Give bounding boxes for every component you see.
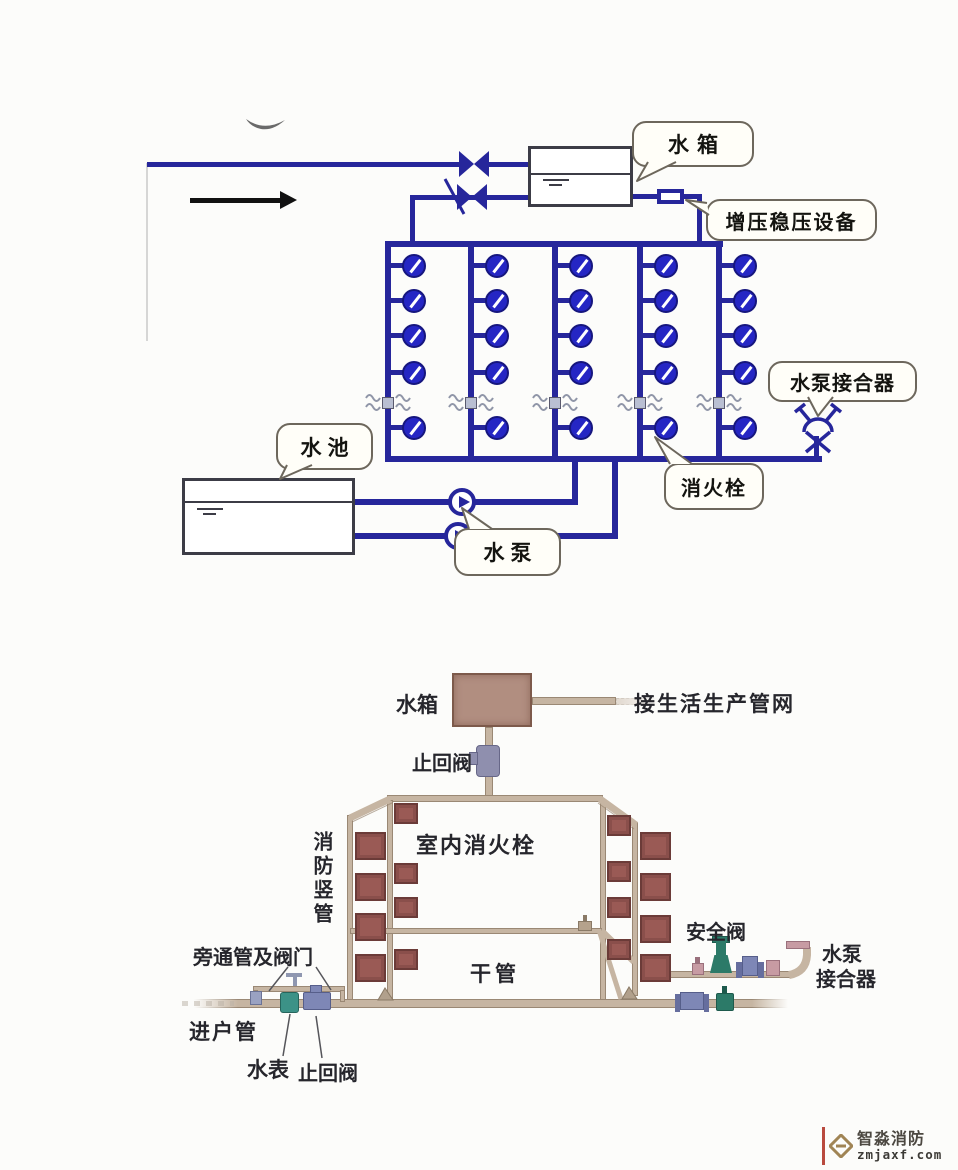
water-pool-box bbox=[182, 478, 355, 555]
outlet-slash bbox=[492, 329, 504, 343]
service-network-label: 接生活生产管网 bbox=[634, 688, 795, 718]
flex-wave-icon bbox=[563, 404, 577, 410]
pipe-segment bbox=[814, 436, 819, 458]
brand-name: 智淼消防 bbox=[857, 1131, 942, 1148]
outlet-slash bbox=[576, 421, 588, 435]
pipe-fade bbox=[752, 997, 792, 1010]
pump-label: 水泵 bbox=[484, 537, 538, 567]
hydrant-outlet-icon bbox=[569, 416, 593, 440]
flex-wave-icon bbox=[366, 404, 380, 410]
flex-wave-icon bbox=[533, 395, 547, 401]
outlet-slash bbox=[492, 259, 504, 273]
gate-valve-flange-icon bbox=[736, 962, 742, 978]
indoor-hydrant-label: 室内消火栓 bbox=[416, 828, 536, 860]
pipe-segment bbox=[600, 800, 606, 1000]
hydrant-outlet-icon bbox=[733, 254, 757, 278]
hydrant-box bbox=[355, 954, 386, 982]
flex-wave-icon bbox=[479, 404, 493, 410]
pipe-segment bbox=[387, 800, 393, 1000]
hydrant-box bbox=[355, 873, 386, 901]
water-tank-label: 水箱 bbox=[668, 129, 726, 159]
water-level-mark bbox=[543, 179, 569, 181]
outlet-slash bbox=[661, 329, 673, 343]
check-valve-top-label: 止回阀 bbox=[412, 747, 472, 776]
flow-arrow-shaft bbox=[190, 198, 282, 203]
hydrant-outlet-icon bbox=[654, 254, 678, 278]
label-bubble-pressure-device: 增压稳压设备 bbox=[706, 199, 877, 241]
flex-wave-icon bbox=[533, 404, 547, 410]
check-valve-flange-icon bbox=[704, 994, 709, 1012]
flow-arrow-head-icon bbox=[280, 191, 297, 209]
pipe-segment bbox=[385, 456, 822, 462]
pipe-segment bbox=[253, 986, 345, 992]
hydrant-box bbox=[394, 949, 418, 970]
hydrant-outlet-icon bbox=[485, 361, 509, 385]
water-tank-box bbox=[528, 146, 633, 207]
pipe-segment bbox=[532, 697, 616, 705]
outlet-slash bbox=[740, 366, 752, 380]
small-valve-icon bbox=[766, 960, 780, 976]
label-bubble-pump-adapter: 水泵接合器 bbox=[768, 361, 917, 402]
flex-wave-icon bbox=[479, 395, 493, 401]
pressure-device-label: 增压稳压设备 bbox=[726, 206, 858, 235]
pipe-segment bbox=[347, 815, 353, 1001]
check-valve-icon bbox=[680, 992, 704, 1010]
outlet-slash bbox=[492, 366, 504, 380]
hydrant-outlet-icon bbox=[654, 416, 678, 440]
water-level-mark bbox=[203, 513, 216, 515]
leader-line bbox=[269, 967, 331, 1058]
hydrant-outlet-icon bbox=[733, 416, 757, 440]
hydrant-box bbox=[394, 803, 418, 824]
hydrant-outlet-icon bbox=[733, 289, 757, 313]
brand-logo-icon bbox=[829, 1134, 853, 1158]
hydrant-box bbox=[607, 897, 631, 918]
diagram-graphics-layer bbox=[0, 0, 958, 1170]
hydrant-outlet-icon bbox=[654, 361, 678, 385]
outlet-slash bbox=[740, 421, 752, 435]
hydrant-box bbox=[607, 861, 631, 882]
pipe-segment bbox=[410, 195, 415, 246]
water-meter-label: 水表 bbox=[247, 1054, 289, 1084]
standpipe-label: 消防竖管 bbox=[308, 831, 337, 933]
bypass-label: 旁通管及阀门 bbox=[193, 941, 313, 970]
outlet-slash bbox=[409, 421, 421, 435]
pump-adapter-label: 水泵接合器 bbox=[790, 367, 895, 396]
flex-wave-icon bbox=[618, 404, 632, 410]
outlet-slash bbox=[740, 294, 752, 308]
check-valve-icon bbox=[476, 745, 500, 777]
outlet-slash bbox=[740, 259, 752, 273]
label-bubble-water-tank: 水箱 bbox=[632, 121, 754, 167]
flex-wave-icon bbox=[396, 404, 410, 410]
hydrant-outlet-icon bbox=[402, 361, 426, 385]
check-valve-flange-icon bbox=[675, 994, 680, 1012]
bubble-tails-layer bbox=[0, 0, 958, 1170]
diagram-page: 水箱 增压稳压设备 水泵接合器 消火栓 水池 水泵 水箱 接生活生产管网 止回阀… bbox=[0, 0, 958, 1170]
mid-pipe-valve-icon bbox=[578, 921, 592, 931]
outlet-slash bbox=[576, 294, 588, 308]
pipe-segment bbox=[697, 194, 702, 246]
outlet-slash bbox=[492, 421, 504, 435]
adapter-flange-icon bbox=[786, 941, 810, 949]
bypass-valve-stem-icon bbox=[293, 977, 297, 986]
flex-wave-icon bbox=[449, 404, 463, 410]
hydrant-box bbox=[394, 897, 418, 918]
small-valve-icon bbox=[692, 963, 704, 975]
hydrant-outlet-icon bbox=[485, 289, 509, 313]
flex-joint-icon bbox=[713, 397, 725, 409]
scan-smudge bbox=[246, 119, 285, 129]
flex-joint-icon bbox=[634, 397, 646, 409]
brand-domain: zmjaxf.com bbox=[857, 1148, 942, 1161]
outlet-slash bbox=[661, 366, 673, 380]
flex-wave-icon bbox=[366, 395, 380, 401]
outlet-slash bbox=[576, 329, 588, 343]
flex-joint-icon bbox=[549, 397, 561, 409]
flex-joint-icon bbox=[382, 397, 394, 409]
outlet-slash bbox=[409, 366, 421, 380]
flex-wave-icon bbox=[396, 395, 410, 401]
hydrant-outlet-icon bbox=[569, 361, 593, 385]
red-divider-line bbox=[822, 1127, 825, 1165]
hydrant-outlet-icon bbox=[733, 361, 757, 385]
shutoff-valve-icon bbox=[716, 993, 734, 1011]
outlet-slash bbox=[492, 294, 504, 308]
pressure-device-icon bbox=[657, 189, 684, 204]
hydrant-outlet-icon bbox=[402, 289, 426, 313]
roof-tank-label: 水箱 bbox=[396, 689, 438, 719]
safety-valve-label: 安全阀 bbox=[686, 916, 746, 945]
pipe-segment bbox=[147, 162, 462, 167]
roof-tank-box bbox=[452, 673, 532, 727]
pipe-segment bbox=[612, 460, 618, 539]
entry-pipe-label: 进户管 bbox=[189, 1016, 258, 1046]
safety-valve-body-icon bbox=[710, 955, 732, 973]
flex-wave-icon bbox=[697, 404, 711, 410]
outlet-slash bbox=[661, 259, 673, 273]
fire-pump-icon bbox=[448, 488, 476, 516]
hydrant-box bbox=[394, 863, 418, 884]
hydrant-label: 消火栓 bbox=[681, 472, 747, 501]
pipe-segment bbox=[340, 990, 345, 1002]
outlet-slash bbox=[661, 294, 673, 308]
flex-wave-icon bbox=[697, 395, 711, 401]
flex-wave-icon bbox=[727, 404, 741, 410]
hydrant-outlet-icon bbox=[402, 416, 426, 440]
hydrant-box bbox=[640, 954, 671, 982]
hydrant-box bbox=[607, 815, 631, 836]
small-valve-icon bbox=[250, 991, 262, 1005]
main-pipe-label: 干管 bbox=[470, 958, 520, 988]
hydrant-outlet-icon bbox=[402, 324, 426, 348]
outlet-slash bbox=[409, 294, 421, 308]
water-meter-icon bbox=[280, 992, 299, 1013]
hydrant-outlet-icon bbox=[654, 289, 678, 313]
hydrant-box bbox=[640, 915, 671, 943]
check-valve-bottom-label: 止回阀 bbox=[298, 1057, 358, 1086]
bypass-valve-handle-icon bbox=[286, 973, 302, 977]
pipe-segment bbox=[410, 195, 528, 200]
mid-pipe-valve-stem-icon bbox=[583, 915, 587, 922]
outlet-slash bbox=[740, 329, 752, 343]
hydrant-outlet-icon bbox=[485, 416, 509, 440]
hydrant-outlet-icon bbox=[569, 254, 593, 278]
water-level-mark bbox=[197, 508, 223, 510]
flex-wave-icon bbox=[563, 395, 577, 401]
site-watermark: 智淼消防 zmjaxf.com bbox=[822, 1127, 942, 1165]
outlet-slash bbox=[409, 329, 421, 343]
water-level-mark bbox=[549, 184, 562, 186]
pool-divider-line bbox=[185, 501, 352, 503]
flex-wave-icon bbox=[618, 395, 632, 401]
gate-valve-icon bbox=[742, 956, 758, 976]
label-bubble-hydrant: 消火栓 bbox=[664, 463, 764, 510]
hydrant-box bbox=[355, 832, 386, 860]
small-valve-stem-icon bbox=[695, 957, 700, 964]
hydrant-outlet-icon bbox=[569, 289, 593, 313]
check-valve-bump-icon bbox=[310, 985, 322, 993]
flex-joint-icon bbox=[465, 397, 477, 409]
flex-wave-icon bbox=[648, 404, 662, 410]
hydrant-box bbox=[640, 832, 671, 860]
pipe-segment bbox=[632, 822, 638, 996]
pipe-segment bbox=[387, 795, 603, 802]
adapter-elbow-pipe bbox=[789, 947, 807, 975]
label-bubble-pump: 水泵 bbox=[454, 528, 561, 576]
outlet-slash bbox=[409, 259, 421, 273]
hydrant-outlet-icon bbox=[402, 254, 426, 278]
flex-wave-icon bbox=[648, 395, 662, 401]
pump-adapter-label-line2: 接合器 bbox=[816, 963, 876, 992]
outlet-slash bbox=[576, 259, 588, 273]
gate-valve-flange-icon bbox=[758, 962, 764, 978]
flex-wave-icon bbox=[449, 395, 463, 401]
hydrant-outlet-icon bbox=[654, 324, 678, 348]
hydrant-box bbox=[607, 939, 631, 960]
pool-label: 水池 bbox=[301, 432, 355, 462]
hydrant-box bbox=[640, 873, 671, 901]
pipe-segment bbox=[487, 162, 528, 167]
hydrant-box bbox=[355, 913, 386, 941]
hydrant-outlet-icon bbox=[569, 324, 593, 348]
label-bubble-pool: 水池 bbox=[276, 423, 373, 470]
pipe-segment bbox=[350, 928, 602, 934]
outlet-slash bbox=[576, 366, 588, 380]
hydrant-outlet-icon bbox=[485, 254, 509, 278]
check-valve-icon bbox=[303, 992, 331, 1010]
flex-wave-icon bbox=[727, 395, 741, 401]
outlet-slash bbox=[661, 421, 673, 435]
scan-edge-line bbox=[146, 163, 148, 341]
shutoff-valve-stem-icon bbox=[722, 986, 727, 993]
tank-divider-line bbox=[531, 173, 630, 175]
hydrant-outlet-icon bbox=[733, 324, 757, 348]
hydrant-outlet-icon bbox=[485, 324, 509, 348]
entry-pipe-dashes bbox=[182, 1001, 234, 1006]
